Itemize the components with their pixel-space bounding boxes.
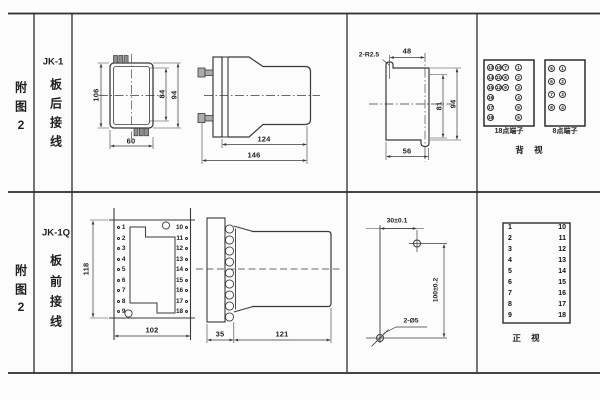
terminal-dot-icon bbox=[185, 300, 188, 303]
terminal-8-label: 8点端子 bbox=[553, 126, 578, 136]
terminal-dot-icon bbox=[117, 310, 120, 313]
terminal-pin: 7 bbox=[548, 91, 555, 98]
terminal-dot-icon bbox=[185, 226, 188, 229]
rear-view-label: 背 视 bbox=[515, 144, 546, 156]
terminal-marker: 18 bbox=[173, 308, 188, 315]
dim-cutout-bottom: 56 bbox=[403, 147, 412, 156]
terminal-pin: 1 bbox=[559, 65, 566, 72]
terminal-bumps bbox=[225, 225, 233, 321]
wiring-label-char: 前 bbox=[50, 273, 62, 290]
terminal-dot-icon bbox=[185, 289, 188, 292]
dim-panel-width: 102 bbox=[145, 326, 158, 335]
figure-label-char: 2 bbox=[18, 300, 25, 314]
dim-body-depth: 121 bbox=[275, 330, 288, 339]
table-cell: 10 bbox=[550, 224, 566, 231]
terminal-marker: 1 bbox=[117, 224, 125, 231]
terminal-pin: 13 bbox=[487, 64, 494, 71]
jk1-cutout-view-drawing bbox=[369, 53, 461, 162]
terminal-dot-icon bbox=[117, 300, 120, 303]
terminal-marker: 10 bbox=[173, 224, 188, 231]
jk1-side-view-drawing bbox=[198, 57, 320, 164]
terminal-dot-icon bbox=[185, 237, 188, 240]
terminal-marker: 13 bbox=[173, 256, 188, 263]
terminal-pin: 2 bbox=[559, 78, 566, 85]
terminal-pin: 3 bbox=[515, 84, 522, 91]
terminal-marker: 6 bbox=[117, 277, 125, 284]
model-label-jk1q: JK-1Q bbox=[42, 228, 70, 239]
table-cell: 7 bbox=[508, 290, 512, 297]
terminal-pin: 3 bbox=[559, 91, 566, 98]
terminal-marker: 17 bbox=[173, 298, 188, 305]
terminal-pin: 14 bbox=[487, 74, 494, 81]
terminal-dot-icon bbox=[117, 237, 120, 240]
terminal-marker: 11 bbox=[173, 235, 188, 242]
dim-cutout-top: 48 bbox=[403, 47, 412, 56]
terminal-marker: 14 bbox=[173, 266, 188, 273]
terminal-marker: 7 bbox=[117, 287, 125, 294]
terminal-marker: 5 bbox=[117, 266, 125, 273]
terminal-pin: 1 bbox=[515, 64, 522, 71]
note-corner-radius: 2-R2.5 bbox=[359, 52, 379, 59]
terminal-pin: 11 bbox=[495, 74, 502, 81]
wiring-label-char: 板 bbox=[50, 76, 62, 93]
table-cell: 3 bbox=[508, 246, 512, 253]
terminal-pin: 6 bbox=[548, 78, 555, 85]
terminal-dot-icon bbox=[117, 268, 120, 271]
dim-hole-offset-y: 100±0.2 bbox=[433, 278, 440, 303]
mounting-hole bbox=[162, 222, 169, 229]
dim-flange-depth: 35 bbox=[216, 330, 225, 339]
figure-label-char: 图 bbox=[15, 281, 27, 298]
figure-label-char: 附 bbox=[15, 262, 27, 279]
front-view-label: 正 视 bbox=[512, 332, 543, 344]
terminal-pin: 10 bbox=[495, 64, 502, 71]
terminal-pin: 2 bbox=[515, 74, 522, 81]
dim-inner-height: 84 bbox=[158, 90, 167, 99]
terminal-marker: 12 bbox=[173, 245, 188, 252]
terminal-dot-icon bbox=[117, 289, 120, 292]
wiring-label-char: 接 bbox=[50, 293, 62, 310]
dim-body-length: 124 bbox=[257, 135, 270, 144]
terminal-pin: 5 bbox=[515, 104, 522, 111]
dim-case-width: 60 bbox=[127, 137, 136, 146]
terminal-pin: 4 bbox=[559, 104, 566, 111]
table-cell: 6 bbox=[508, 279, 512, 286]
wiring-label-char: 线 bbox=[50, 133, 62, 150]
terminal-18-label: 18点端子 bbox=[495, 126, 524, 136]
terminal-marker: 4 bbox=[117, 256, 125, 263]
figure-label-char: 附 bbox=[15, 79, 27, 96]
table-cell: 13 bbox=[550, 257, 566, 264]
wiring-label-char: 后 bbox=[50, 95, 62, 112]
terminal-dot-icon bbox=[117, 279, 120, 282]
terminal-pin: 8 bbox=[548, 104, 555, 111]
diagram-linework bbox=[0, 0, 600, 400]
terminal-marker: 2 bbox=[117, 235, 125, 242]
terminal-pin: 15 bbox=[487, 84, 494, 91]
dim-total-length: 146 bbox=[247, 151, 260, 160]
terminal-pin: 6 bbox=[515, 114, 522, 121]
figure-label-char: 图 bbox=[15, 98, 27, 115]
table-frame bbox=[8, 14, 600, 374]
table-cell: 9 bbox=[508, 312, 512, 319]
table-cell: 12 bbox=[550, 246, 566, 253]
dim-outer-height: 94 bbox=[170, 91, 179, 100]
table-cell: 14 bbox=[550, 268, 566, 275]
terminal-pin: 12 bbox=[495, 84, 502, 91]
mounting-hole bbox=[125, 310, 132, 317]
terminal-pin: 16 bbox=[487, 94, 494, 101]
model-label-jk1: JK-1 bbox=[43, 57, 64, 68]
terminal-pin: 18 bbox=[487, 114, 494, 121]
terminal-dot-icon bbox=[117, 247, 120, 250]
jk1-rear-view-drawing bbox=[98, 54, 182, 149]
terminal-pin: 17 bbox=[487, 104, 494, 111]
table-cell: 4 bbox=[508, 257, 512, 264]
terminal-pin: 5 bbox=[548, 65, 555, 72]
terminal-marker: 3 bbox=[117, 245, 125, 252]
terminal-pin: 9 bbox=[502, 84, 509, 91]
terminal-marker: 15 bbox=[173, 277, 188, 284]
table-cell: 15 bbox=[550, 279, 566, 286]
terminal-dot-icon bbox=[185, 279, 188, 282]
table-cell: 2 bbox=[508, 235, 512, 242]
terminal-dot-icon bbox=[185, 247, 188, 250]
table-cell: 5 bbox=[508, 268, 512, 275]
terminal-dot-icon bbox=[117, 226, 120, 229]
dim-cutout-outer-height: 94 bbox=[449, 100, 458, 109]
terminal-pin: 7 bbox=[502, 64, 509, 71]
manual-page: 附 图 2 JK-1 板 后 接 线 106 60 84 94 124 146 … bbox=[0, 0, 600, 400]
note-hole-diameter: 2-Ø5 bbox=[403, 318, 418, 325]
dim-panel-height: 118 bbox=[82, 263, 91, 276]
terminal-marker: 9 bbox=[117, 308, 125, 315]
leader-line bbox=[384, 327, 428, 334]
centerline bbox=[99, 54, 164, 139]
terminal-dot-icon bbox=[185, 310, 188, 313]
table-cell: 11 bbox=[550, 235, 566, 242]
jk1q-side-view-drawing bbox=[196, 218, 341, 343]
table-cell: 1 bbox=[508, 224, 512, 231]
terminal-pin: 8 bbox=[502, 74, 509, 81]
table-cell: 17 bbox=[550, 301, 566, 308]
table-cell: 16 bbox=[550, 290, 566, 297]
table-cell: 8 bbox=[508, 301, 512, 308]
terminal-dot-icon bbox=[117, 258, 120, 261]
terminal-marker: 16 bbox=[173, 287, 188, 294]
dim-case-height: 106 bbox=[92, 88, 101, 101]
terminal-dot-icon bbox=[185, 268, 188, 271]
terminal-dot-icon bbox=[185, 258, 188, 261]
wiring-label-char: 板 bbox=[50, 252, 62, 269]
wiring-label-char: 接 bbox=[50, 114, 62, 131]
terminal-pin: 4 bbox=[515, 94, 522, 101]
terminal-marker: 8 bbox=[117, 298, 125, 305]
figure-label-char: 2 bbox=[18, 118, 25, 132]
dim-hole-offset-x: 30±0.1 bbox=[387, 218, 408, 225]
wiring-label-char: 线 bbox=[50, 313, 62, 330]
dim-cutout-inner-height: 81 bbox=[435, 102, 444, 111]
table-cell: 18 bbox=[550, 312, 566, 319]
